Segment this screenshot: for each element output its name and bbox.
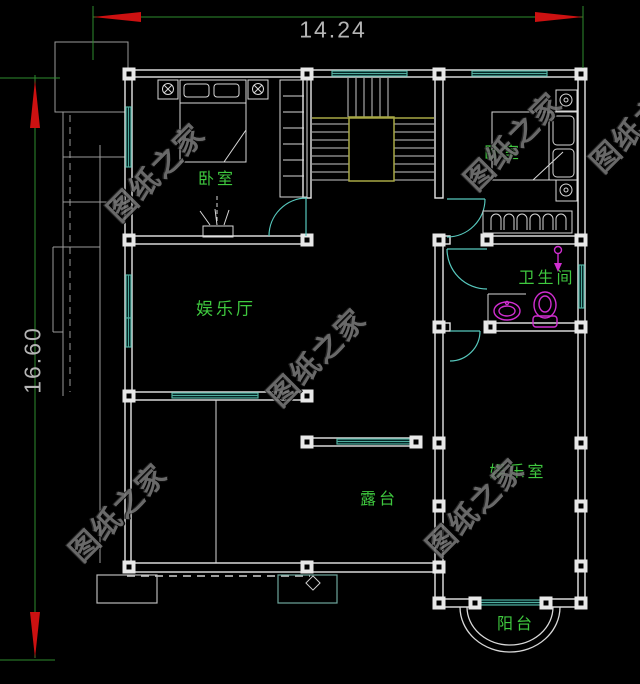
dimension-top-label: 14.24 [299, 17, 367, 44]
room-label-terrace: 露台 [360, 485, 398, 509]
window [126, 275, 131, 318]
sink-icon [494, 302, 520, 321]
dimension-left-label: 16.60 [20, 326, 47, 394]
window [126, 107, 131, 167]
door-arc [450, 331, 480, 361]
bathroom-fixtures [488, 247, 562, 331]
dimension-arrow [535, 12, 583, 22]
room-label-balcony: 阳台 [497, 610, 535, 634]
door-arc [447, 199, 485, 237]
floor-plan-canvas: 14.24 16.60 卧室 卧室 娱乐厅 卫生间 娱乐室 露台 阳台 图纸之家… [0, 0, 640, 684]
door-arc [447, 249, 487, 289]
drain-icon [306, 576, 320, 590]
staircase [312, 78, 434, 181]
room-label-bathroom: 卫生间 [518, 264, 575, 288]
window [472, 71, 547, 76]
window [579, 265, 584, 308]
window [337, 439, 410, 444]
room-label-bedroom-left: 卧室 [198, 165, 236, 189]
bottom-steps [97, 575, 337, 603]
doors [269, 198, 487, 361]
room-label-recreation-hall: 娱乐厅 [196, 295, 256, 320]
window [332, 71, 407, 76]
door-arc [269, 198, 307, 236]
dimension-arrow [93, 12, 141, 22]
window [126, 318, 131, 347]
toilet-icon [533, 292, 557, 327]
dimension-arrow [30, 80, 40, 128]
window [478, 600, 543, 605]
window [172, 393, 258, 398]
dimension-arrow [30, 612, 40, 658]
